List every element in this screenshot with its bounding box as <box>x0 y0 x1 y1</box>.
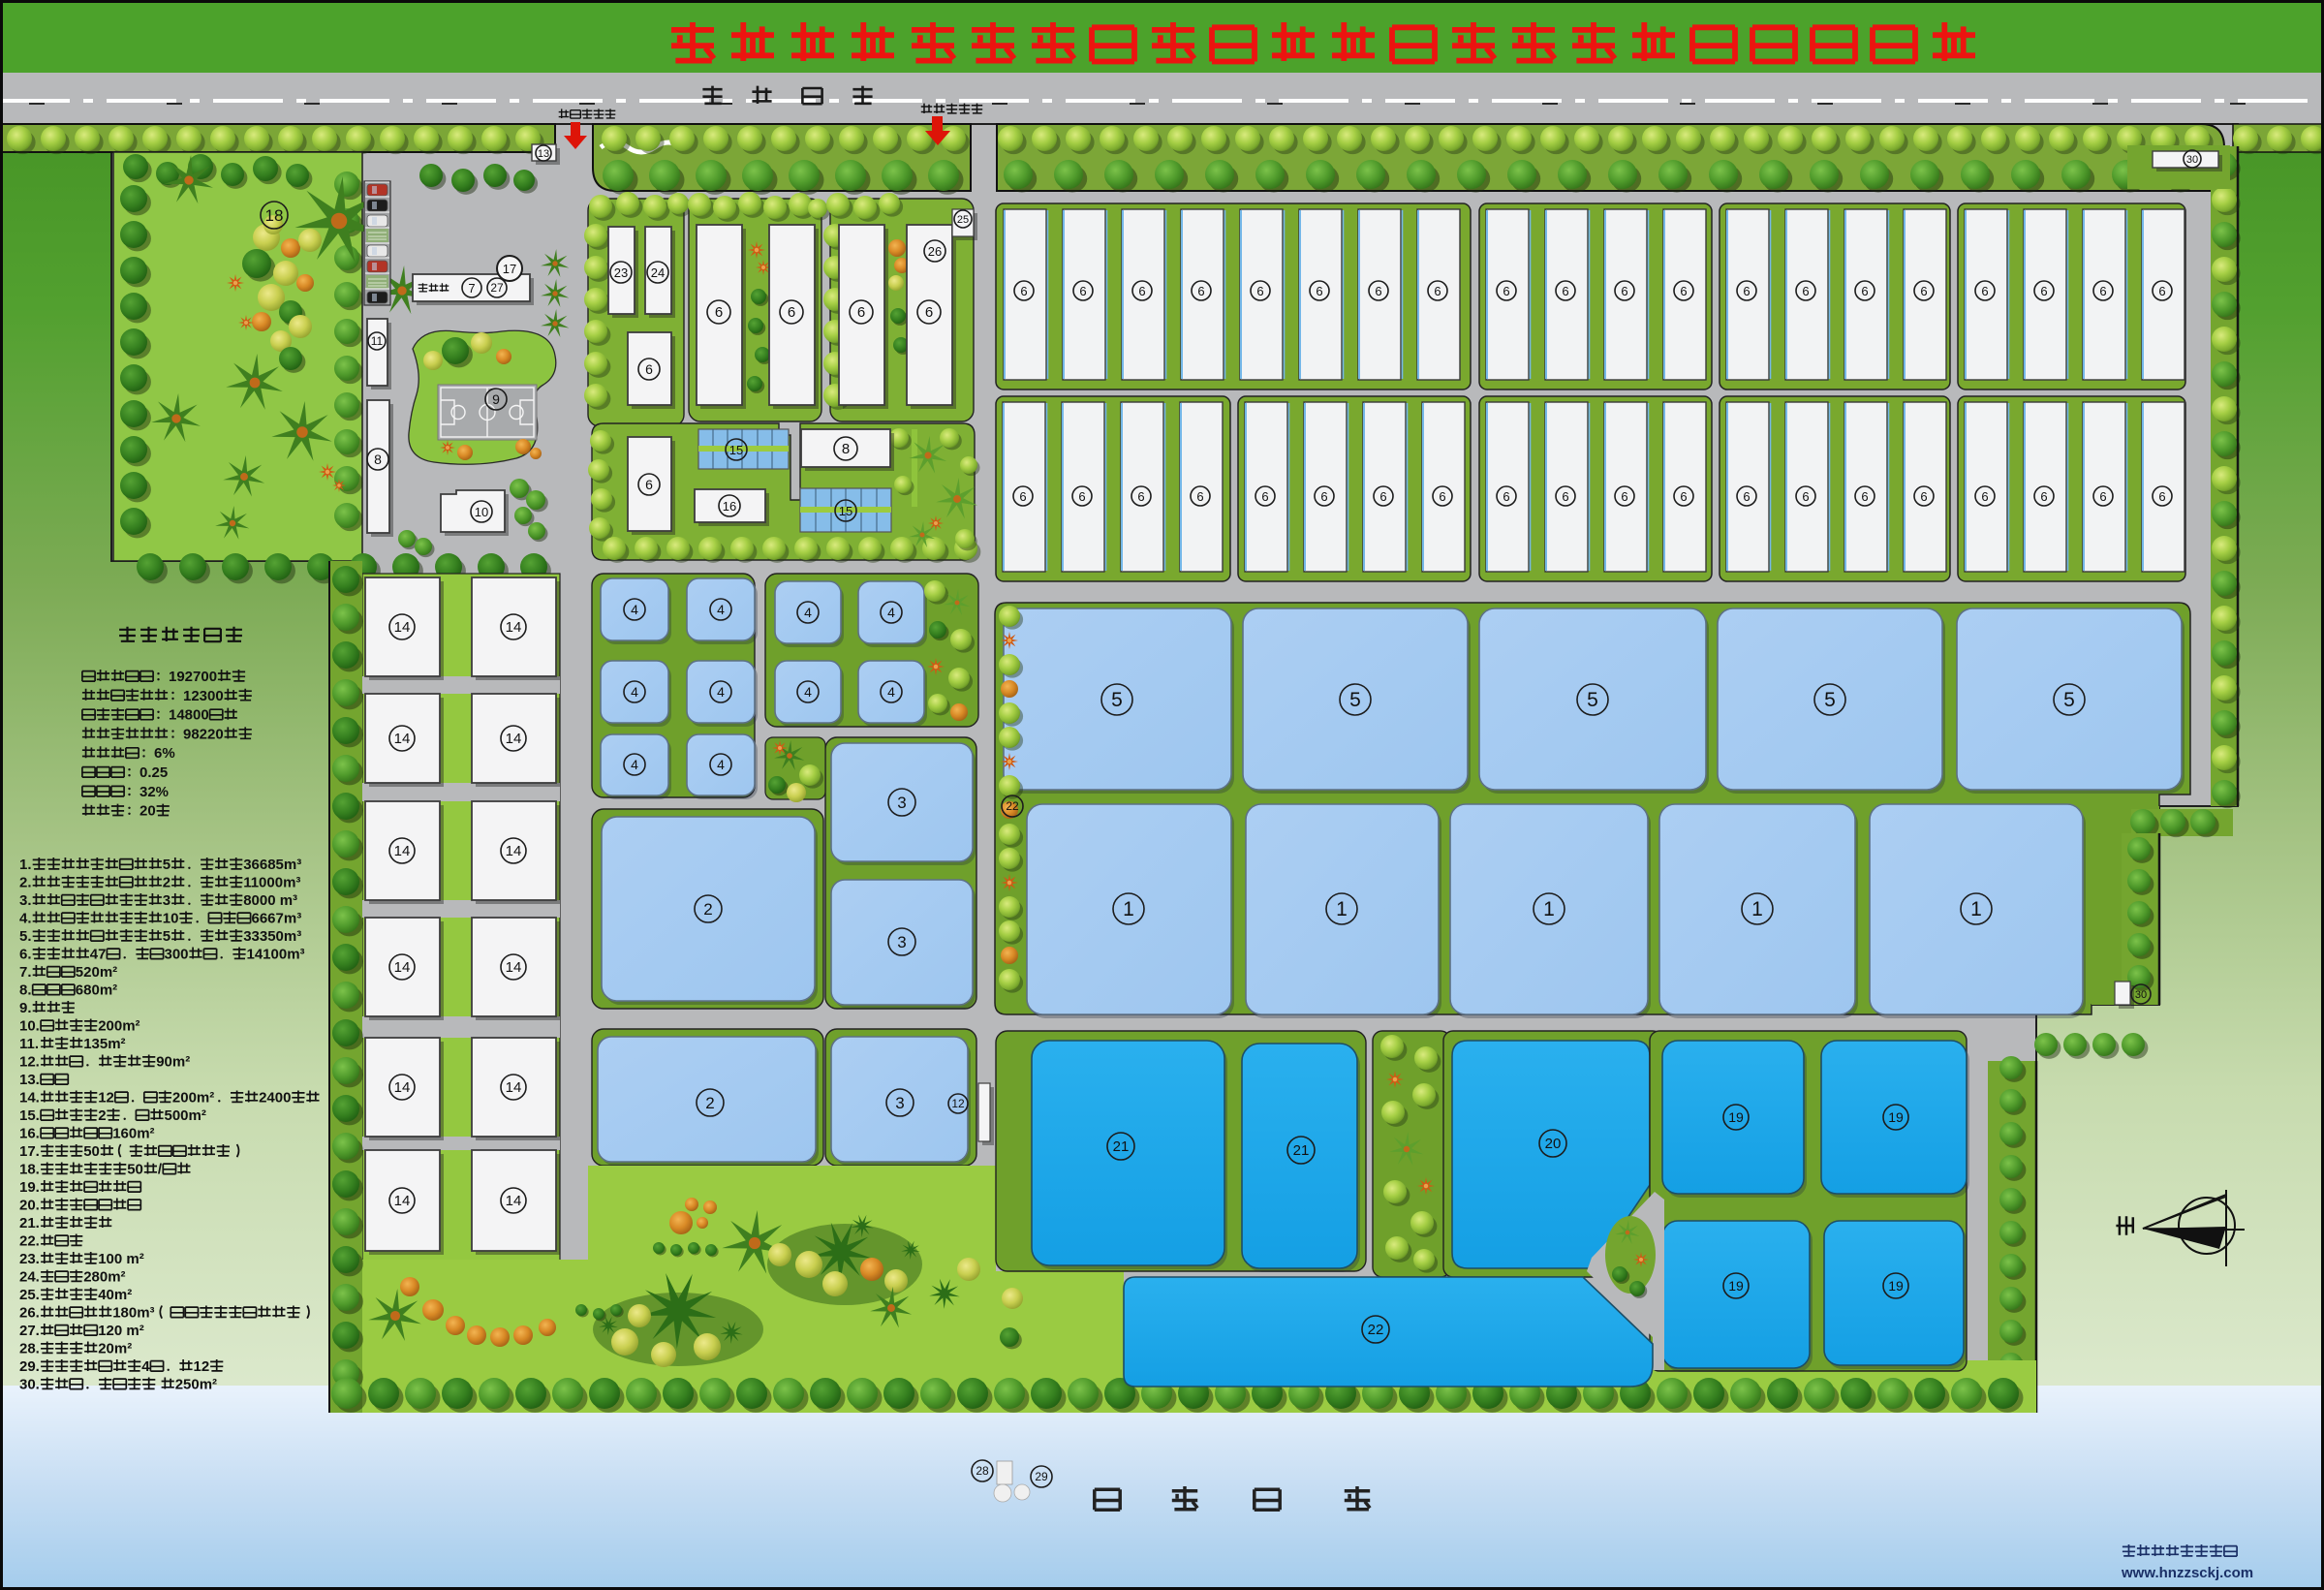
svg-text:0.25: 0.25 <box>139 764 168 781</box>
svg-text:22: 22 <box>1368 1322 1384 1338</box>
svg-text:6: 6 <box>1256 284 1263 298</box>
svg-text:4: 4 <box>887 684 895 700</box>
svg-text:16.: 16. <box>19 1126 40 1142</box>
svg-text:6: 6 <box>1861 489 1868 504</box>
svg-text:5: 5 <box>1349 689 1361 711</box>
svg-text:6: 6 <box>715 304 723 321</box>
svg-text:17: 17 <box>503 262 516 276</box>
svg-text:6: 6 <box>1981 284 1988 298</box>
svg-text:21: 21 <box>1293 1142 1310 1159</box>
svg-text:3: 3 <box>897 933 906 951</box>
svg-text:4: 4 <box>631 684 638 700</box>
svg-text:14: 14 <box>394 843 411 859</box>
svg-text:15: 15 <box>729 443 743 457</box>
svg-text:19: 19 <box>1728 1109 1744 1125</box>
svg-text:19.: 19. <box>19 1179 40 1196</box>
svg-text:10: 10 <box>475 505 488 519</box>
svg-text:120 m²: 120 m² <box>98 1323 144 1339</box>
svg-text:24: 24 <box>651 265 665 280</box>
svg-text:30: 30 <box>2135 989 2147 1001</box>
svg-text:3: 3 <box>163 892 170 909</box>
svg-text:1: 1 <box>1751 898 1763 920</box>
svg-text:200m²: 200m² <box>172 1090 214 1107</box>
svg-text:14: 14 <box>506 959 522 976</box>
svg-text:19: 19 <box>1888 1278 1904 1294</box>
svg-text:6: 6 <box>2099 489 2106 504</box>
svg-text:22.: 22. <box>19 1233 40 1250</box>
svg-text:14800: 14800 <box>169 707 209 724</box>
svg-text:250m²: 250m² <box>175 1377 217 1393</box>
svg-text:12300: 12300 <box>183 688 224 704</box>
svg-text:200m²: 200m² <box>98 1018 139 1035</box>
svg-text:6: 6 <box>1743 284 1750 298</box>
svg-text:6: 6 <box>1621 284 1627 298</box>
svg-text:4: 4 <box>804 684 812 700</box>
svg-text:3.: 3. <box>19 892 32 909</box>
svg-text:2: 2 <box>703 900 712 919</box>
svg-text:6: 6 <box>1680 284 1687 298</box>
svg-text:2: 2 <box>98 1107 106 1124</box>
svg-text:14.: 14. <box>19 1090 40 1107</box>
svg-text:26.: 26. <box>19 1305 40 1322</box>
svg-text:6: 6 <box>1138 284 1145 298</box>
svg-text:14: 14 <box>394 731 411 747</box>
svg-text:6: 6 <box>1802 284 1809 298</box>
svg-text:36685m³: 36685m³ <box>243 857 301 873</box>
svg-text:1: 1 <box>1336 898 1348 920</box>
svg-text:30.: 30. <box>19 1377 40 1393</box>
svg-text:6: 6 <box>1434 284 1441 298</box>
svg-text:19: 19 <box>1728 1278 1744 1294</box>
svg-text:6: 6 <box>2040 489 2047 504</box>
svg-text:1: 1 <box>1543 898 1555 920</box>
svg-text:5: 5 <box>163 928 170 945</box>
svg-text:18.: 18. <box>19 1162 40 1178</box>
svg-text:6: 6 <box>1375 284 1381 298</box>
svg-text:6: 6 <box>1316 284 1322 298</box>
svg-text:24.: 24. <box>19 1269 40 1286</box>
svg-text:5.: 5. <box>19 928 32 945</box>
svg-text:8.: 8. <box>19 982 32 999</box>
svg-text:4.: 4. <box>19 911 32 927</box>
svg-text:50: 50 <box>83 1143 100 1160</box>
svg-text:6: 6 <box>1680 489 1687 504</box>
svg-text:8000 m³: 8000 m³ <box>243 892 297 909</box>
svg-text:16: 16 <box>723 499 736 514</box>
svg-text:6: 6 <box>1802 489 1809 504</box>
svg-text:6: 6 <box>1562 284 1568 298</box>
svg-text:7: 7 <box>468 281 475 296</box>
svg-text:47: 47 <box>90 947 107 963</box>
svg-text:135m²: 135m² <box>83 1036 125 1052</box>
svg-text:1: 1 <box>1970 898 1982 920</box>
svg-text:4: 4 <box>717 602 725 617</box>
svg-text:8: 8 <box>842 441 850 457</box>
svg-text:14: 14 <box>394 1079 411 1096</box>
svg-text:520m²: 520m² <box>76 964 117 981</box>
svg-text:6: 6 <box>1562 489 1568 504</box>
svg-text:6: 6 <box>1503 489 1509 504</box>
svg-text:680m²: 680m² <box>76 982 117 999</box>
svg-text:6: 6 <box>857 304 865 321</box>
svg-text:6: 6 <box>1981 489 1988 504</box>
svg-text:6: 6 <box>1439 489 1445 504</box>
svg-text:6: 6 <box>1078 489 1085 504</box>
svg-text:27: 27 <box>490 281 504 295</box>
svg-text:6: 6 <box>2040 284 2047 298</box>
svg-text:22: 22 <box>1006 799 1019 813</box>
svg-text:12: 12 <box>951 1097 965 1110</box>
svg-text:6.: 6. <box>19 947 32 963</box>
svg-text:18: 18 <box>265 206 284 225</box>
svg-text:15: 15 <box>839 504 852 518</box>
svg-text:4: 4 <box>717 684 725 700</box>
svg-text:6: 6 <box>1743 489 1750 504</box>
svg-text:6: 6 <box>2158 284 2165 298</box>
svg-text:40m²: 40m² <box>98 1287 132 1303</box>
svg-text:280m²: 280m² <box>83 1269 125 1286</box>
svg-text:6: 6 <box>645 477 653 492</box>
svg-text:www.hnzzsckj.com: www.hnzzsckj.com <box>2121 1565 2253 1581</box>
svg-text:28.: 28. <box>19 1341 40 1357</box>
svg-text:3: 3 <box>897 794 906 812</box>
svg-text:14: 14 <box>394 619 411 636</box>
svg-text:20m²: 20m² <box>98 1341 132 1357</box>
svg-text:11000m³: 11000m³ <box>243 875 300 891</box>
svg-text:1.: 1. <box>19 857 32 873</box>
svg-text:4: 4 <box>717 757 725 772</box>
svg-text:4: 4 <box>887 605 895 620</box>
svg-text:6: 6 <box>1196 489 1203 504</box>
svg-text:11.: 11. <box>19 1036 39 1052</box>
svg-text:98220: 98220 <box>183 726 224 742</box>
svg-text:13.: 13. <box>19 1072 40 1088</box>
svg-text:10: 10 <box>163 911 179 927</box>
svg-text:14: 14 <box>506 1193 522 1209</box>
svg-text:300: 300 <box>165 947 189 963</box>
svg-text:20: 20 <box>139 803 156 820</box>
svg-text:14: 14 <box>394 959 411 976</box>
svg-text:4: 4 <box>141 1358 150 1375</box>
svg-text:6: 6 <box>925 304 933 321</box>
svg-text:7.: 7. <box>19 964 32 981</box>
svg-text:5: 5 <box>1824 689 1836 711</box>
svg-text:90m²: 90m² <box>156 1054 190 1071</box>
svg-text:6: 6 <box>1621 489 1627 504</box>
svg-text:26: 26 <box>928 244 942 259</box>
svg-text:6: 6 <box>2099 284 2106 298</box>
svg-text:33350m³: 33350m³ <box>243 928 301 945</box>
svg-text:500m²: 500m² <box>165 1107 206 1124</box>
svg-text:160m²: 160m² <box>112 1126 154 1142</box>
svg-text:6: 6 <box>1320 489 1327 504</box>
svg-text:23.: 23. <box>19 1251 40 1267</box>
svg-text:9.: 9. <box>19 1000 32 1016</box>
svg-text:50: 50 <box>127 1162 143 1178</box>
svg-text:12.: 12. <box>19 1054 40 1071</box>
svg-text:1: 1 <box>1123 898 1134 920</box>
svg-text:6: 6 <box>1137 489 1144 504</box>
svg-text:11: 11 <box>371 334 384 348</box>
svg-text:14: 14 <box>506 731 522 747</box>
svg-text:4: 4 <box>631 602 638 617</box>
svg-text:17.: 17. <box>19 1143 40 1160</box>
svg-text:5: 5 <box>1111 689 1123 711</box>
svg-text:6: 6 <box>1379 489 1386 504</box>
svg-text:4: 4 <box>631 757 638 772</box>
svg-text:2: 2 <box>705 1094 714 1112</box>
svg-text:23: 23 <box>614 265 628 280</box>
svg-text:32%: 32% <box>139 784 169 800</box>
svg-text:6%: 6% <box>154 745 175 762</box>
svg-text:12: 12 <box>194 1358 210 1375</box>
svg-text:6667m³: 6667m³ <box>252 911 302 927</box>
svg-text:100 m²: 100 m² <box>98 1251 144 1267</box>
svg-text:28: 28 <box>976 1464 989 1478</box>
svg-text:27.: 27. <box>19 1323 40 1339</box>
svg-text:20: 20 <box>1545 1136 1562 1152</box>
svg-text:6: 6 <box>645 361 653 377</box>
svg-text:4: 4 <box>804 605 812 620</box>
svg-text:192700: 192700 <box>169 669 217 685</box>
svg-text:6: 6 <box>1920 489 1927 504</box>
svg-text:9: 9 <box>492 391 500 407</box>
svg-text:2.: 2. <box>19 875 32 891</box>
svg-text:5: 5 <box>2063 689 2075 711</box>
svg-text:14: 14 <box>506 843 522 859</box>
svg-text:29.: 29. <box>19 1358 40 1375</box>
svg-text:6: 6 <box>1079 284 1086 298</box>
svg-text:14100m³: 14100m³ <box>247 947 305 963</box>
svg-text:5: 5 <box>163 857 170 873</box>
svg-text:180m³: 180m³ <box>112 1305 154 1322</box>
svg-text:5: 5 <box>1587 689 1598 711</box>
svg-text:25: 25 <box>957 214 969 226</box>
svg-text:6: 6 <box>1861 284 1868 298</box>
svg-text:8: 8 <box>374 452 382 467</box>
svg-text:6: 6 <box>1020 284 1027 298</box>
svg-text:20.: 20. <box>19 1198 40 1214</box>
svg-text:14: 14 <box>394 1193 411 1209</box>
svg-text:29: 29 <box>1035 1470 1048 1483</box>
svg-text:6: 6 <box>1197 284 1204 298</box>
svg-text:6: 6 <box>788 304 795 321</box>
svg-text:6: 6 <box>2158 489 2165 504</box>
svg-text:25.: 25. <box>19 1287 40 1303</box>
svg-text:21: 21 <box>1113 1138 1130 1155</box>
svg-text:14: 14 <box>506 1079 522 1096</box>
svg-text:15.: 15. <box>19 1107 40 1124</box>
svg-text:2: 2 <box>163 875 170 891</box>
svg-text:12: 12 <box>98 1090 114 1107</box>
svg-text:6: 6 <box>1503 284 1509 298</box>
svg-text:13: 13 <box>538 148 549 160</box>
svg-text:19: 19 <box>1888 1109 1904 1125</box>
svg-text:3: 3 <box>895 1094 904 1112</box>
svg-text:21.: 21. <box>19 1215 40 1231</box>
svg-text:30: 30 <box>2186 154 2198 166</box>
svg-text:10.: 10. <box>19 1018 40 1035</box>
svg-text:2400: 2400 <box>259 1090 291 1107</box>
svg-text:6: 6 <box>1261 489 1268 504</box>
svg-text:14: 14 <box>506 619 522 636</box>
svg-text:6: 6 <box>1019 489 1026 504</box>
svg-text:6: 6 <box>1920 284 1927 298</box>
